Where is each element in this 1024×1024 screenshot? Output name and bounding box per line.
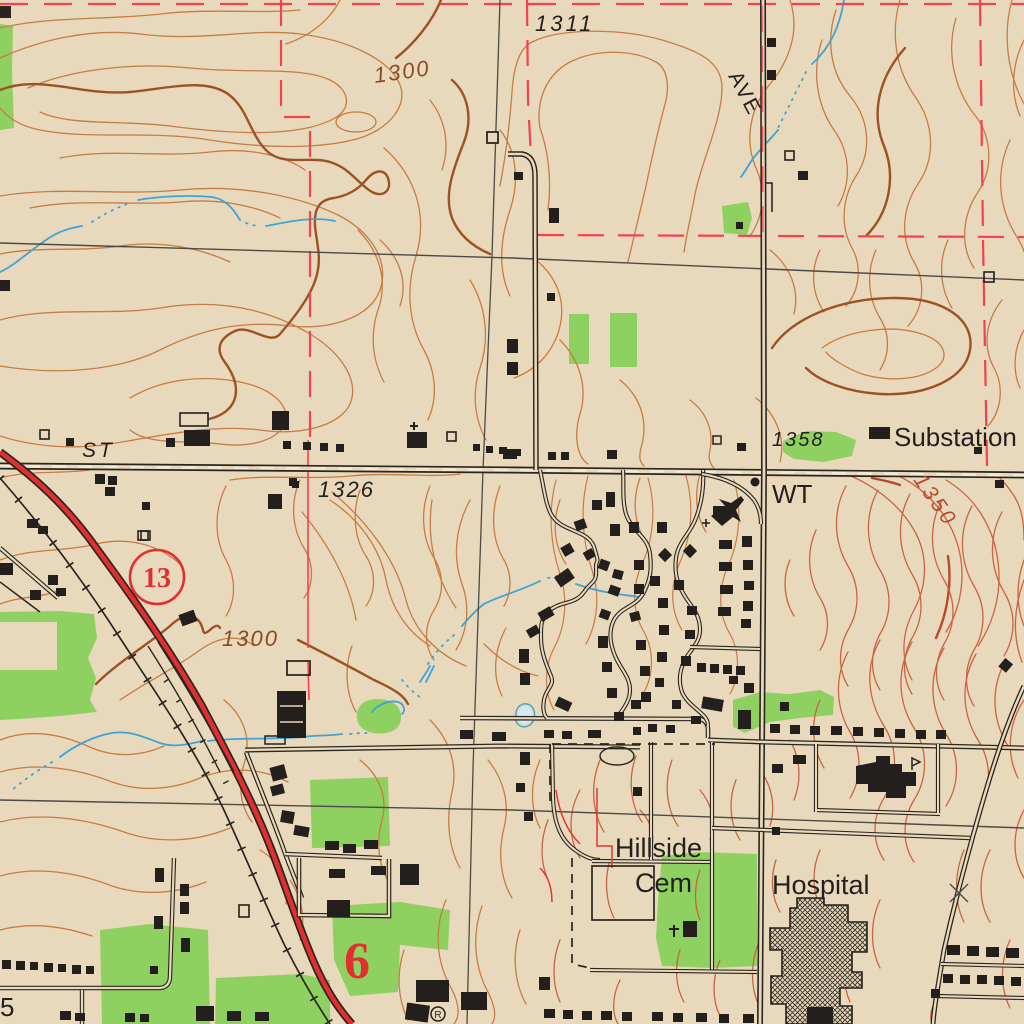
svg-text:Hillside: Hillside xyxy=(615,833,702,863)
svg-text:1358: 1358 xyxy=(772,429,825,451)
svg-text:13: 13 xyxy=(143,563,171,594)
svg-text:1300: 1300 xyxy=(222,626,279,651)
svg-text:Substation: Substation xyxy=(894,422,1017,452)
svg-text:5: 5 xyxy=(0,992,14,1022)
svg-text:Cem: Cem xyxy=(635,868,692,898)
svg-text:R: R xyxy=(434,1010,441,1021)
svg-text:Hospital: Hospital xyxy=(772,870,870,900)
svg-text:WT: WT xyxy=(772,479,813,509)
svg-text:1326: 1326 xyxy=(318,477,375,502)
svg-text:1311: 1311 xyxy=(535,11,594,36)
svg-text:ST: ST xyxy=(82,439,115,462)
svg-text:6: 6 xyxy=(344,933,370,990)
